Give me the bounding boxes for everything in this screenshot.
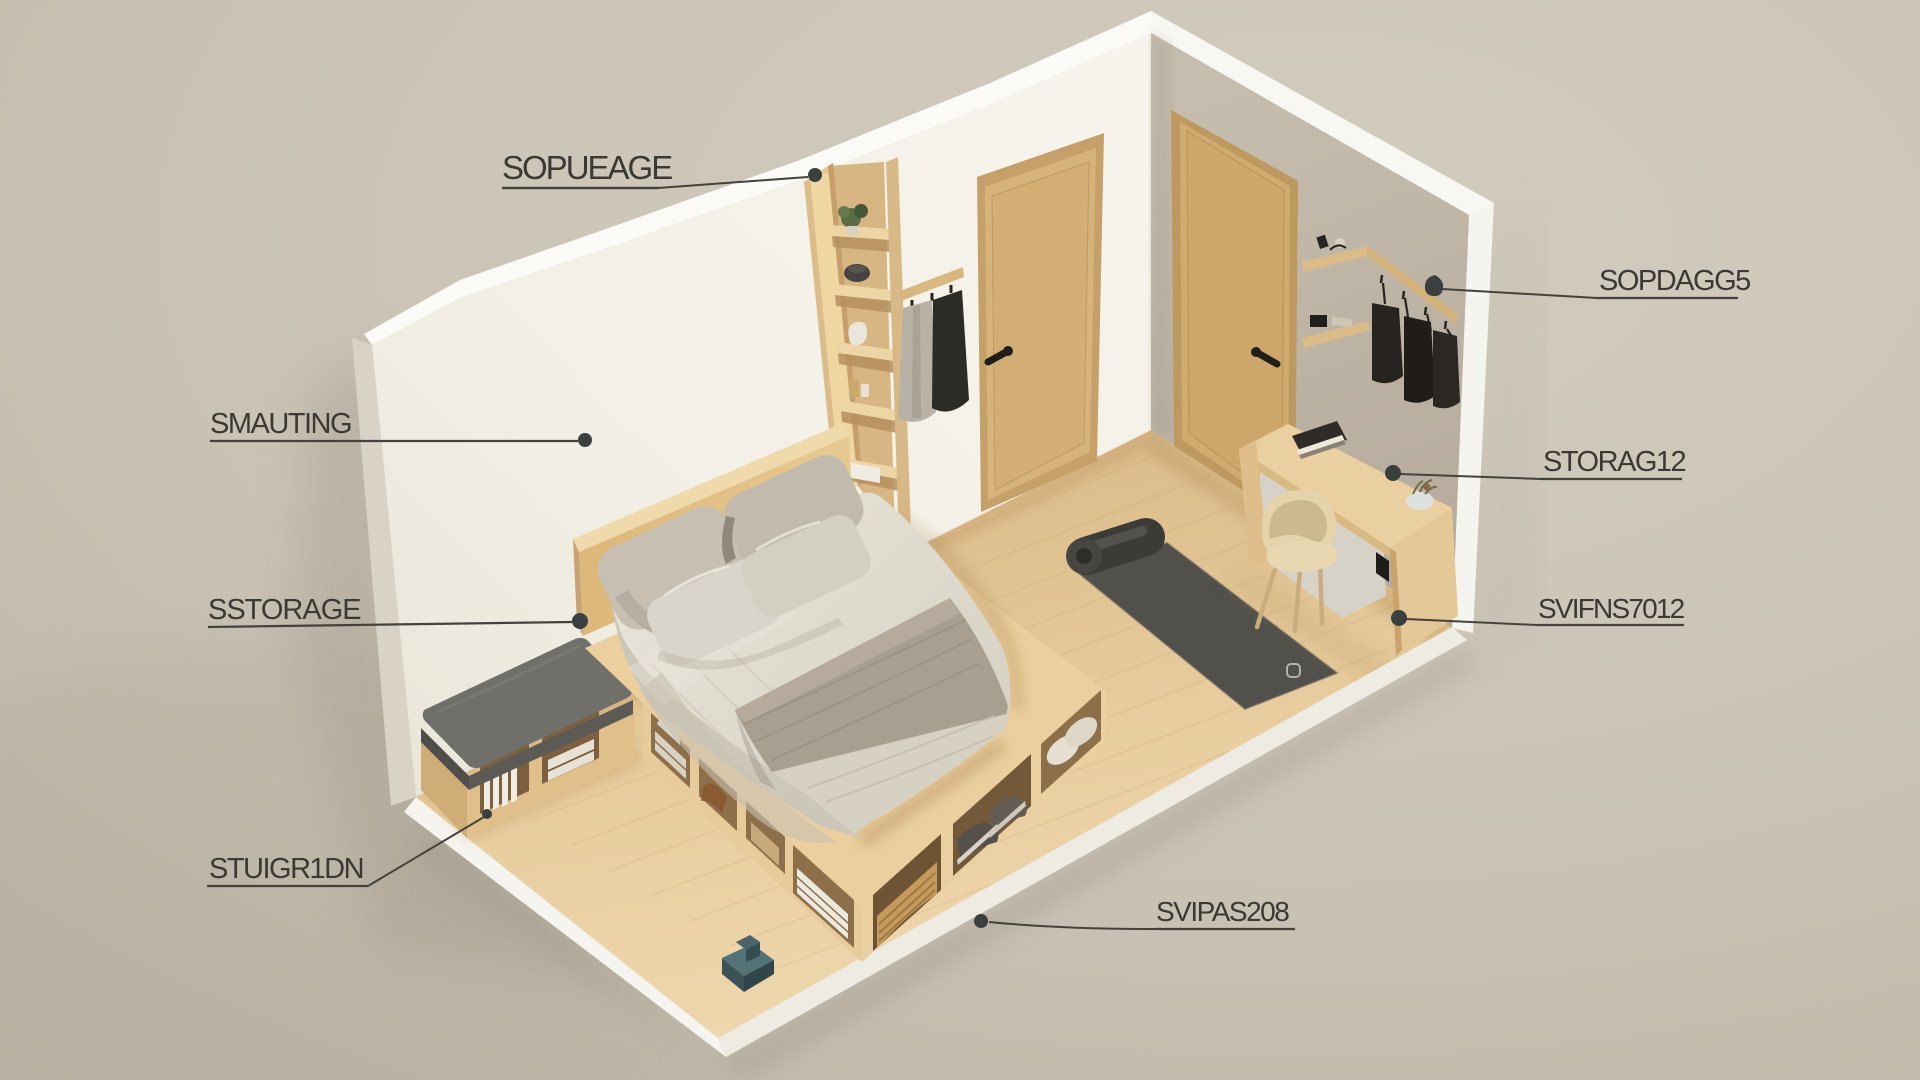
svg-text:STORAG12: STORAG12	[1543, 446, 1686, 478]
svg-text:SVIPAS208: SVIPAS208	[1156, 896, 1289, 927]
svg-text:SSTORAGE: SSTORAGE	[208, 594, 361, 626]
svg-text:SOPUEAGE: SOPUEAGE	[502, 149, 672, 186]
svg-text:SMAUTING: SMAUTING	[210, 408, 351, 440]
svg-text:STUIGR1DN: STUIGR1DN	[209, 853, 363, 885]
svg-text:SVIFNS7012: SVIFNS7012	[1538, 593, 1685, 624]
svg-text:SOPDAGG5: SOPDAGG5	[1599, 265, 1750, 297]
